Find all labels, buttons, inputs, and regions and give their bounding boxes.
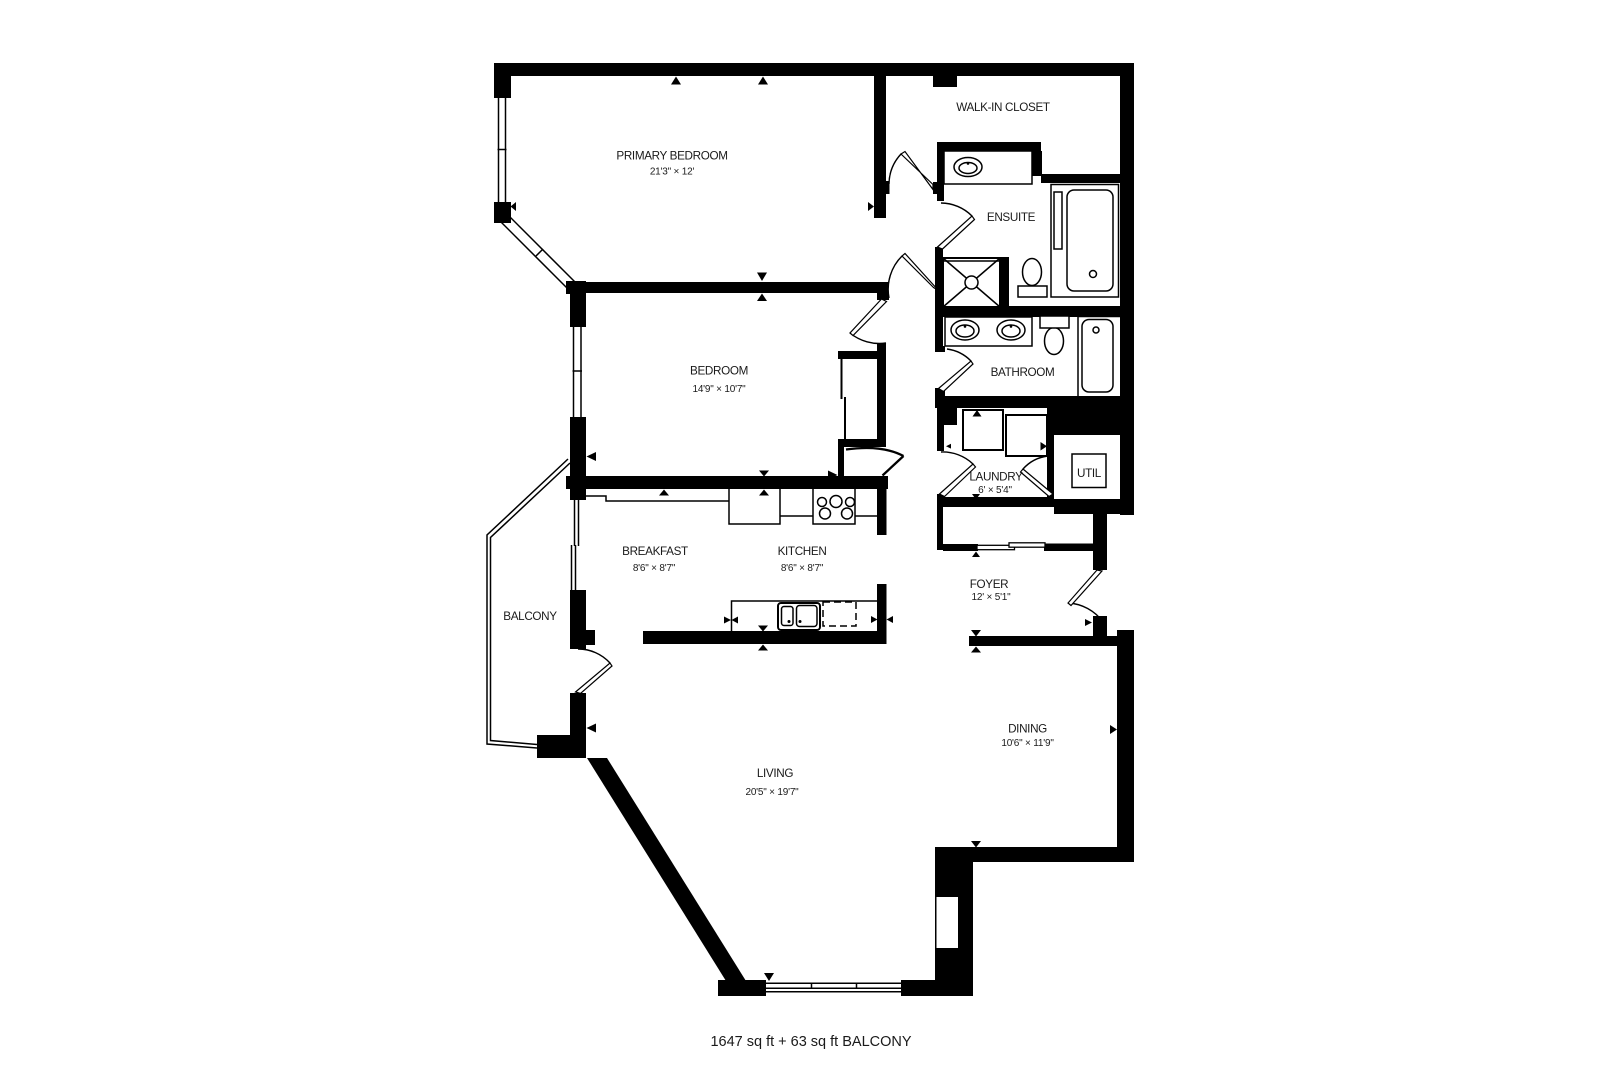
svg-text:LIVING: LIVING — [757, 767, 793, 780]
svg-text:14'9" × 10'7": 14'9" × 10'7" — [692, 384, 746, 395]
svg-text:20'5" × 19'7": 20'5" × 19'7" — [745, 787, 799, 798]
svg-text:PRIMARY BEDROOM: PRIMARY BEDROOM — [616, 150, 727, 163]
svg-text:8'6" × 8'7": 8'6" × 8'7" — [633, 563, 676, 574]
svg-text:21'3" × 12': 21'3" × 12' — [650, 167, 695, 178]
svg-text:DINING: DINING — [1008, 723, 1047, 736]
svg-text:8'6" × 8'7": 8'6" × 8'7" — [781, 563, 824, 574]
svg-text:BEDROOM: BEDROOM — [690, 365, 748, 378]
svg-text:ENSUITE: ENSUITE — [987, 211, 1036, 224]
svg-text:6' × 5'4": 6' × 5'4" — [978, 485, 1012, 496]
svg-text:12' × 5'1": 12' × 5'1" — [971, 592, 1011, 603]
svg-text:WALK-IN CLOSET: WALK-IN CLOSET — [956, 101, 1050, 114]
svg-text:BREAKFAST: BREAKFAST — [622, 545, 688, 558]
svg-text:1647 sq ft + 63 sq ft BALCONY: 1647 sq ft + 63 sq ft BALCONY — [710, 1034, 911, 1050]
svg-text:LAUNDRY: LAUNDRY — [969, 471, 1023, 484]
svg-text:10'6" × 11'9": 10'6" × 11'9" — [1001, 738, 1054, 749]
svg-text:BATHROOM: BATHROOM — [991, 366, 1055, 379]
svg-text:BALCONY: BALCONY — [503, 610, 557, 623]
svg-text:UTIL: UTIL — [1077, 467, 1102, 480]
svg-text:FOYER: FOYER — [970, 578, 1009, 591]
svg-text:KITCHEN: KITCHEN — [778, 545, 827, 558]
